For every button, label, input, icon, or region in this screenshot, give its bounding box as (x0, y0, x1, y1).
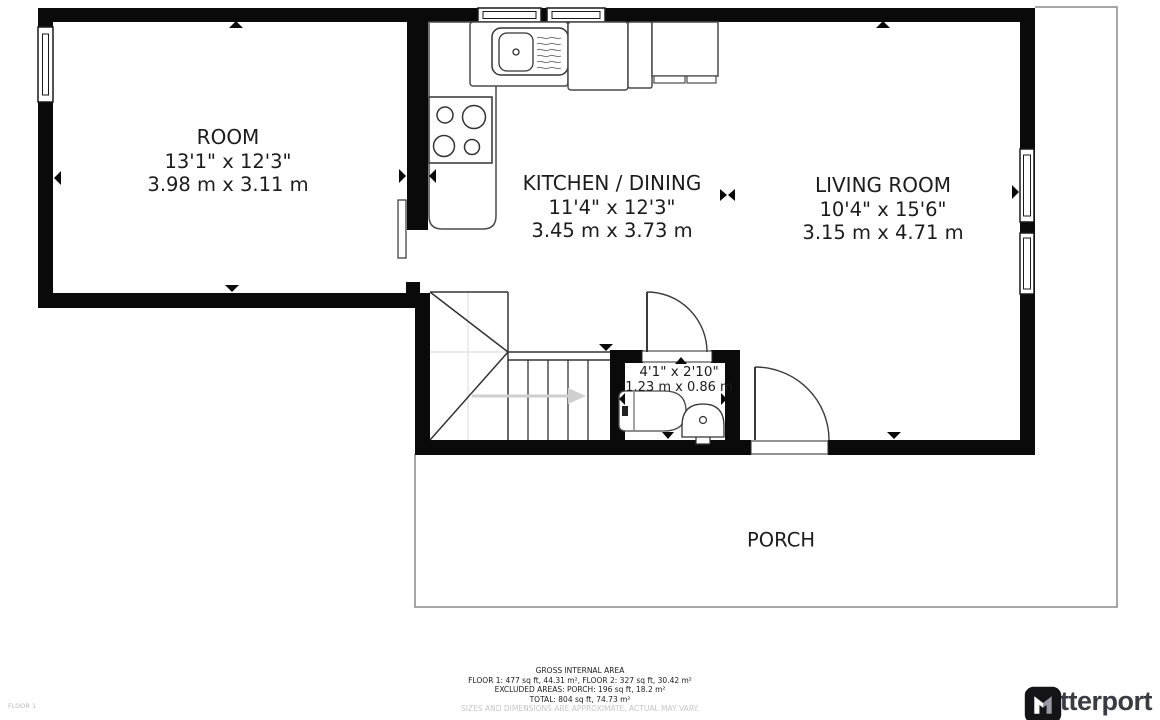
room-bottom-arrow (225, 285, 239, 292)
staircase (430, 292, 610, 440)
room-dim-metric: 3.45 m x 3.73 m (523, 219, 702, 243)
area-summary-total: TOTAL: 804 sq ft, 74.73 m² (0, 695, 1160, 705)
room-dim-metric: 3.98 m x 3.11 m (147, 173, 308, 197)
bathroom-fixtures (619, 391, 724, 444)
bathroom-door-swing (647, 292, 707, 352)
fridge-door (654, 76, 685, 83)
bath-faucet (622, 406, 628, 416)
fridge-door (687, 76, 716, 83)
room-dim-imperial: 10'4" x 15'6" (802, 197, 963, 221)
toilet-button (700, 417, 707, 424)
bathroom-door-threshold (642, 351, 712, 362)
kitchen-living-arrow-left (728, 189, 735, 201)
room-left-arrow (54, 171, 61, 185)
window-kitchen-1 (478, 8, 541, 22)
living-right-arrow (1012, 185, 1019, 199)
room-label-porch: PORCH (747, 529, 815, 552)
kitchen-living-arrow-right (720, 189, 727, 201)
room-name: LIVING ROOM (802, 174, 963, 198)
wall-stair-nub (406, 282, 420, 294)
wall-stair-left (415, 293, 430, 455)
floorplan-canvas: ROOM 13'1" x 12'3" 3.98 m x 3.11 m KITCH… (0, 0, 1160, 720)
room-top-arrow (229, 21, 243, 28)
kitchen-bottom-arrow (599, 344, 613, 351)
wall-right (1020, 8, 1035, 455)
wall-bottom-right (828, 440, 1035, 455)
area-summary-title: GROSS INTERNAL AREA (0, 666, 1160, 676)
wc-bottom-arrow (662, 432, 674, 439)
room-label-living: LIVING ROOM 10'4" x 15'6" 3.15 m x 4.71 … (802, 174, 963, 245)
room-name: KITCHEN / DINING (523, 172, 702, 196)
room-dim-imperial: 11'4" x 12'3" (523, 195, 702, 219)
entry-door-threshold (751, 441, 828, 454)
entry-door-swing (755, 367, 829, 440)
floor-label: FLOOR 1 (8, 702, 36, 710)
stove-burner (437, 107, 453, 123)
stair-winder (430, 292, 508, 352)
room-right-arrow (399, 169, 406, 183)
room-label-kitchen: KITCHEN / DINING 11'4" x 12'3" 3.45 m x … (523, 172, 702, 243)
window-left-wall (38, 27, 53, 102)
wall-room-bottom (38, 293, 430, 308)
living-top-arrow (876, 21, 890, 28)
room-label-room: ROOM 13'1" x 12'3" 3.98 m x 3.11 m (147, 126, 308, 197)
wall-room-kitchen (407, 22, 428, 230)
appliance (628, 22, 652, 88)
window-living-2 (1020, 233, 1034, 294)
area-summary-excluded: EXCLUDED AREAS: PORCH: 196 sq ft, 18.2 m… (0, 685, 1160, 695)
stair-direction-arrow (472, 388, 586, 404)
living-bottom-arrow (887, 432, 901, 439)
porch-outline (415, 7, 1117, 607)
area-summary-floors: FLOOR 1: 477 sq ft, 44.31 m², FLOOR 2: 3… (0, 676, 1160, 686)
area-summary: GROSS INTERNAL AREA FLOOR 1: 477 sq ft, … (0, 666, 1160, 714)
room-label-wc: 4'1" x 2'10" 1.23 m x 0.86 m (625, 365, 732, 395)
window-living-1 (1020, 149, 1034, 222)
matterport-logo-icon (1024, 686, 1062, 720)
window-kitchen-2 (547, 8, 605, 22)
room-dim-imperial: 13'1" x 12'3" (147, 149, 308, 173)
stove-burner (465, 140, 480, 155)
wall-bath-top-left (610, 350, 643, 363)
bath (619, 391, 686, 431)
matterport-brand: Matterport (1024, 686, 1153, 717)
sink-faucet (513, 49, 519, 55)
room-dim-imperial: 4'1" x 2'10" (625, 365, 732, 380)
area-summary-disclaimer: SIZES AND DIMENSIONS ARE APPROXIMATE, AC… (0, 704, 1160, 714)
room-name: ROOM (147, 126, 308, 150)
fridge (652, 22, 718, 76)
appliance (568, 22, 628, 90)
room-dim-metric: 1.23 m x 0.86 m (625, 380, 732, 395)
stove-burner (434, 136, 455, 157)
stove-burner (463, 106, 486, 129)
room-dim-metric: 3.15 m x 4.71 m (802, 221, 963, 245)
room-door-leaf (398, 200, 406, 258)
room-name: PORCH (747, 529, 815, 552)
floorplan-drawing (0, 0, 1160, 720)
